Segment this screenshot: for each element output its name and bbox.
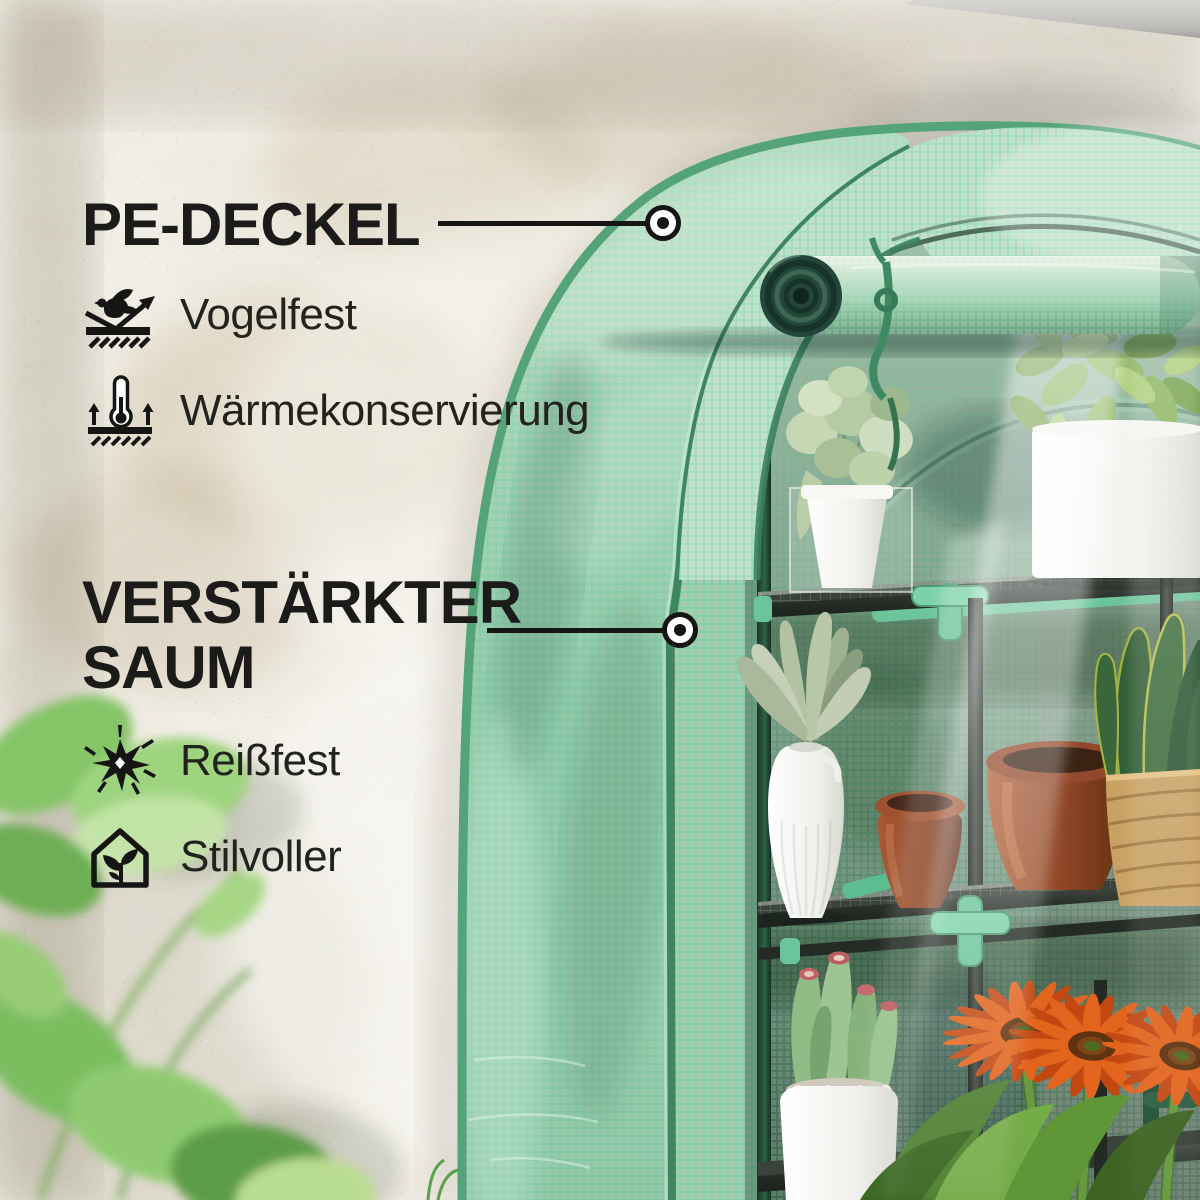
product-scene: PE-DECKEL VERSTÄRKTER SAUM Vogelfest: [0, 0, 1200, 1200]
callout-title-saum: SAUM: [82, 638, 255, 698]
callout-line-saum: [487, 628, 665, 633]
tear-resistant-icon: [82, 723, 158, 799]
bird-proof-icon: [82, 277, 158, 353]
callout-line-pe-deckel: [438, 221, 648, 226]
feature-label: Wärmekonservierung: [180, 389, 589, 433]
callout-title-pe-deckel: PE-DECKEL: [82, 195, 420, 255]
feature-label: Stilvoller: [180, 835, 341, 879]
callout-target-dot-pe-deckel: [645, 205, 681, 241]
feature-stilvoller: Stilvoller: [82, 819, 341, 895]
callout-title-verstaerkter: VERSTÄRKTER: [82, 573, 521, 633]
feature-label: Reißfest: [180, 739, 340, 783]
grass-blades: [428, 1160, 458, 1200]
feature-vogelfest: Vogelfest: [82, 277, 357, 353]
feature-waermekonservierung: Wärmekonservierung: [82, 373, 589, 449]
callout-target-dot-saum: [662, 612, 698, 648]
feature-label: Vogelfest: [180, 293, 357, 337]
heat-retention-icon: [82, 373, 158, 449]
feature-reissfest: Reißfest: [82, 723, 340, 799]
stylish-house-icon: [82, 819, 158, 895]
